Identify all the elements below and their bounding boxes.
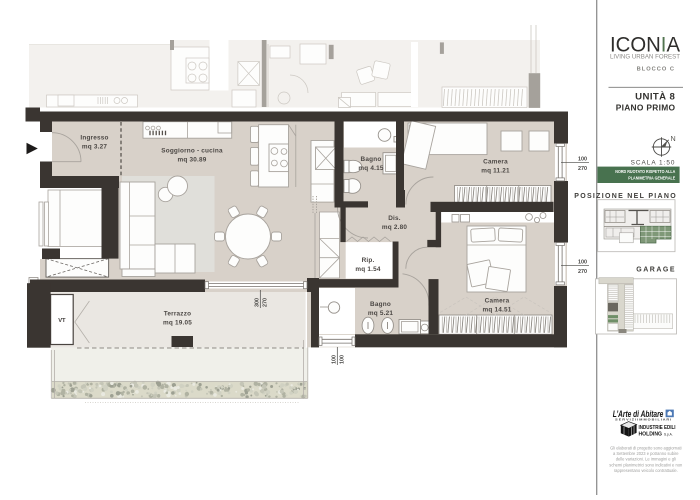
svg-text:270: 270 — [578, 166, 587, 172]
svg-text:N: N — [671, 134, 676, 143]
svg-text:UNITÀ 8: UNITÀ 8 — [635, 91, 675, 103]
svg-text:mq 3.27: mq 3.27 — [82, 144, 107, 151]
svg-text:delle variazioni. Le immagini: delle variazioni. Le immagini e gli — [616, 457, 676, 462]
svg-text:mq 19.05: mq 19.05 — [163, 320, 192, 327]
svg-text:Bagno: Bagno — [361, 156, 382, 163]
svg-text:VT: VT — [58, 318, 66, 324]
svg-text:270: 270 — [578, 269, 587, 275]
svg-text:mq 1.54: mq 1.54 — [355, 266, 380, 273]
svg-text:LIVING URBAN FOREST: LIVING URBAN FOREST — [610, 55, 680, 61]
svg-text:mq 30.89: mq 30.89 — [178, 157, 207, 164]
svg-text:mq 11.21: mq 11.21 — [481, 168, 510, 175]
svg-text:BLOCCO C: BLOCCO C — [637, 66, 675, 72]
svg-text:Camera: Camera — [485, 298, 510, 305]
svg-text:POSIZIONE NEL PIANO: POSIZIONE NEL PIANO — [574, 193, 677, 200]
svg-text:100: 100 — [340, 355, 346, 364]
svg-text:SCALA 1:50: SCALA 1:50 — [631, 160, 676, 167]
svg-text:100: 100 — [332, 355, 338, 364]
svg-text:a Settembre 2023 e potranno su: a Settembre 2023 e potranno subire — [613, 451, 679, 456]
svg-text:100: 100 — [578, 260, 587, 266]
svg-text:mq 5.21: mq 5.21 — [368, 310, 393, 317]
svg-text:L’Arte di Abitare: L’Arte di Abitare — [613, 409, 664, 419]
svg-text:Terrazzo: Terrazzo — [164, 311, 191, 318]
svg-text:mq 4.15: mq 4.15 — [358, 165, 383, 172]
svg-text:HOLDING: HOLDING — [639, 431, 663, 437]
svg-text:Soggiorno - cucina: Soggiorno - cucina — [161, 148, 223, 155]
svg-text:270: 270 — [263, 298, 269, 307]
svg-text:PIANO PRIMO: PIANO PRIMO — [616, 102, 676, 112]
svg-text:mq 2.80: mq 2.80 — [382, 224, 407, 231]
svg-text:GARAGE: GARAGE — [636, 267, 676, 274]
svg-text:Camera: Camera — [483, 159, 508, 166]
svg-text:schemi planimetrici sono indic: schemi planimetrici sono indicativi e no… — [609, 462, 683, 467]
svg-text:rappresentano veicolo contratt: rappresentano veicolo contrattuale. — [614, 468, 678, 473]
svg-text:PLANIMETRIA GENERALE: PLANIMETRIA GENERALE — [628, 176, 675, 181]
svg-text:Bagno: Bagno — [370, 301, 391, 308]
svg-text:mq 14.51: mq 14.51 — [483, 307, 512, 314]
svg-text:Dis.: Dis. — [388, 215, 401, 222]
svg-text:INDUSTRIE EDILI: INDUSTRIE EDILI — [639, 425, 676, 431]
svg-text:100: 100 — [578, 157, 587, 163]
svg-text:Gli elaborati di progetto sono: Gli elaborati di progetto sono aggiornat… — [610, 446, 682, 451]
svg-text:NORD RUOTATO RISPETTO ALLA: NORD RUOTATO RISPETTO ALLA — [615, 169, 676, 174]
svg-text:S.p.A.: S.p.A. — [664, 432, 673, 436]
svg-text:300: 300 — [255, 298, 261, 307]
svg-text:S E R V I Z I I M M O B I L: S E R V I Z I I M M O B I L I A R I — [615, 419, 672, 422]
svg-text:Ingresso: Ingresso — [80, 135, 108, 142]
svg-text:Rip.: Rip. — [362, 257, 375, 264]
svg-text:ICONIA: ICONIA — [610, 33, 681, 57]
